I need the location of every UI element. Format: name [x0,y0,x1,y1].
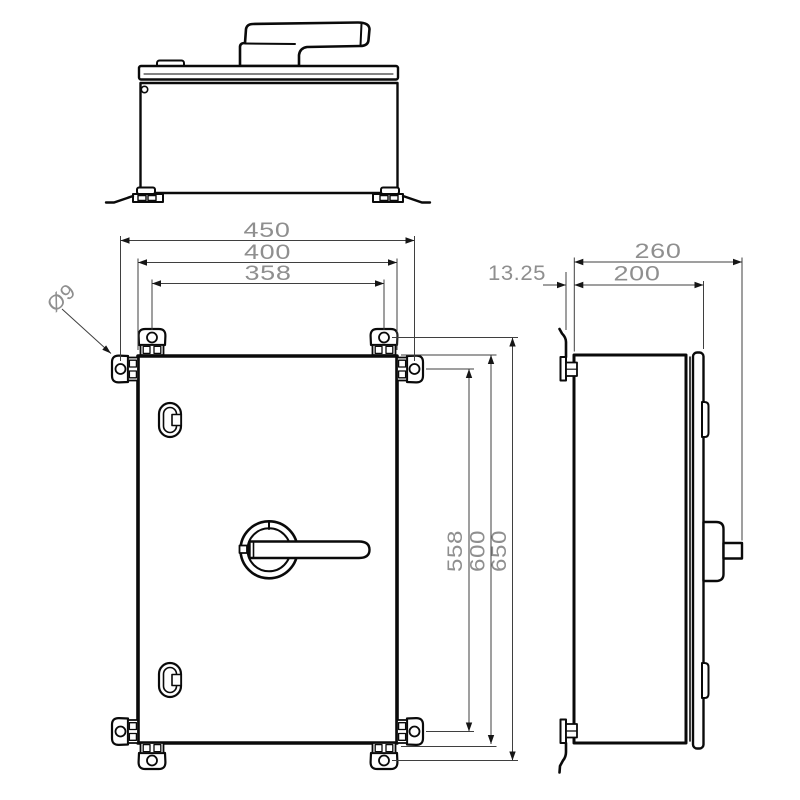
door-hinge-bottom [702,663,709,698]
dim-overall-height: 650 [488,338,516,761]
enclosure-body-top [141,83,398,193]
dim-label-overall-width: 450 [244,219,291,242]
mounting-bracket-left-lower [112,718,138,745]
mounting-foot-right [373,188,430,203]
dim-mount-spacing-horizontal: 358 [152,262,384,287]
dim-label-enclosure-depth: 200 [614,263,661,286]
front-view [112,329,423,769]
mounting-bracket-left-upper [112,356,138,383]
enclosure-body-side [574,355,686,743]
dim-label-bracket-offset: 13.25 [488,262,546,285]
top-view [106,23,430,203]
dim-overall-depth: 260 [574,240,742,265]
wall-bracket-bottom-side [560,720,578,773]
door-lock-top [159,403,181,437]
door-lock-bottom [159,663,181,697]
mounting-bracket-top-left [139,329,166,355]
mounting-bracket-bottom-left [139,743,166,769]
dim-label-mount-hole-diameter: Ø9 [43,280,81,317]
drawing-canvas: 450 400 358 Ø9 558 [0,0,800,800]
dim-label-mount-spacing-vertical: 558 [444,530,467,572]
side-view [560,329,743,773]
dim-label-overall-height: 650 [488,530,511,572]
dim-mount-hole-diameter: Ø9 [43,280,111,354]
dim-enclosure-depth: 200 [574,263,703,289]
dim-label-mount-spacing-horizontal: 358 [245,262,292,285]
dim-label-enclosure-height: 600 [467,530,490,572]
enclosure-lid [139,66,398,80]
technical-drawing: 450 400 358 Ø9 558 [0,0,800,800]
mounting-foot-left [106,188,163,203]
switch-shaft-side [704,522,743,581]
dim-bracket-offset: 13.25 [488,262,566,288]
mounting-bracket-bottom-right [371,743,398,769]
switch-lever [250,542,370,559]
mounting-bracket-top-right [371,329,398,355]
dim-overall-width: 450 [121,219,415,244]
mounting-bracket-right-lower [397,718,423,745]
dim-label-enclosure-width: 400 [244,241,291,264]
dim-label-overall-depth: 260 [635,240,682,263]
mounting-bracket-right-upper [397,356,423,383]
door-hinge-top [702,402,709,437]
